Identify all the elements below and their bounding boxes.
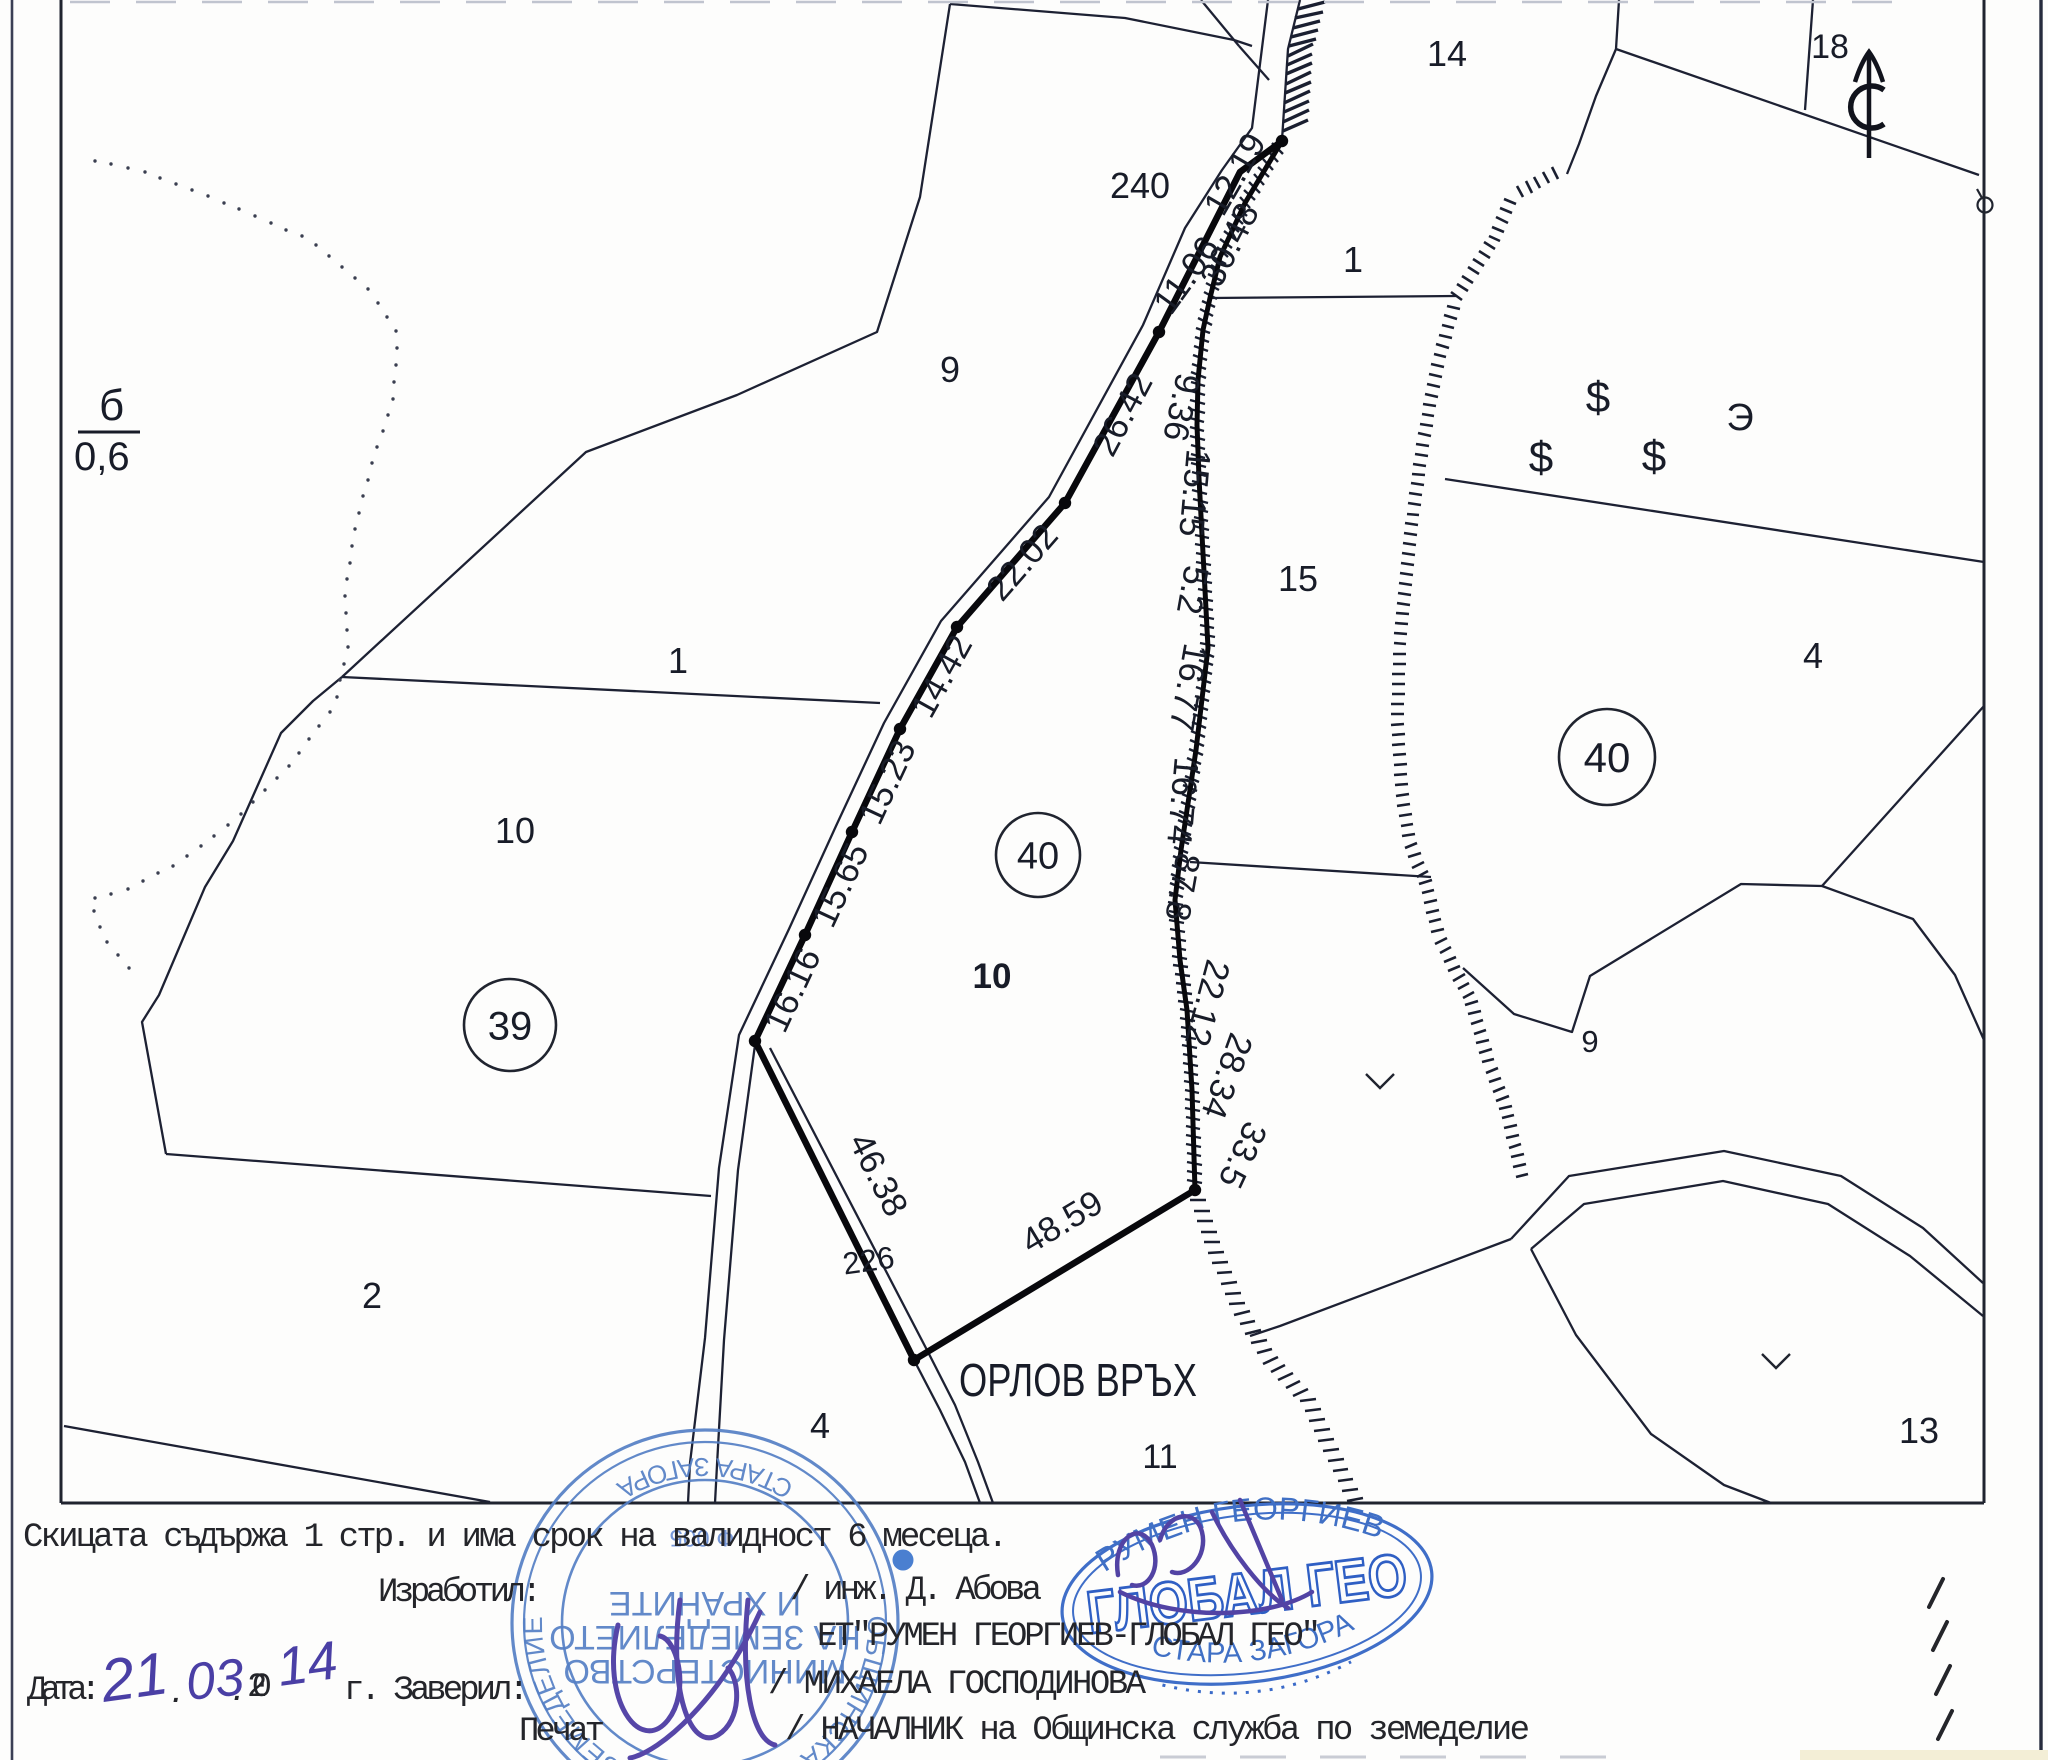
svg-text:И ХРАНИТЕ: И ХРАНИТЕ (609, 1584, 801, 1622)
svg-text:5.2: 5.2 (1169, 563, 1216, 618)
svg-text:16.74: 16.74 (1159, 756, 1205, 847)
svg-text:11: 11 (1142, 1438, 1177, 1476)
svg-text:ОРЛОВ ВРЪХ: ОРЛОВ ВРЪХ (959, 1354, 1197, 1406)
svg-text:87.8: 87.8 (1157, 850, 1207, 924)
svg-text:$: $ (1586, 373, 1610, 422)
svg-text:Скицата съдържа 1 стр. и има с: Скицата съдържа 1 стр. и има срок на вал… (23, 1519, 1008, 1557)
svg-text:$: $ (1529, 433, 1553, 482)
svg-text:ЕТ"РУМЕН ГЕОРГИЕВ-ГЛОБАЛ ГЕО": ЕТ"РУМЕН ГЕОРГИЕВ-ГЛОБАЛ ГЕО" (817, 1618, 1321, 1656)
svg-text:14: 14 (1427, 33, 1467, 74)
svg-text:16.77: 16.77 (1162, 640, 1216, 733)
svg-text:$: $ (1642, 432, 1666, 481)
svg-text:33.5: 33.5 (1210, 1116, 1274, 1194)
svg-text:10: 10 (973, 957, 1012, 996)
svg-text:16.16: 16.16 (756, 942, 828, 1038)
svg-text:13: 13 (1899, 1410, 1939, 1451)
svg-text:.: . (172, 1669, 183, 1711)
svg-text:15.65: 15.65 (804, 837, 876, 933)
svg-text:9: 9 (940, 349, 960, 390)
svg-text:б: б (99, 381, 124, 430)
svg-text:40: 40 (1584, 734, 1631, 781)
svg-text:Изработил:: Изработил: (378, 1574, 542, 1612)
svg-text:/ МИХАЕЛА ГОСПОДИНОВА: / МИХАЕЛА ГОСПОДИНОВА (768, 1666, 1147, 1704)
svg-text:НА ЗЕМЕДЕЛИЕТО: НА ЗЕМЕДЕЛИЕТО (549, 1618, 861, 1656)
svg-text:/ НАЧАЛНИК на Общинска служба: / НАЧАЛНИК на Общинска служба по земедел… (785, 1712, 1530, 1750)
svg-text:Дата:: Дата: (27, 1672, 101, 1710)
svg-text:15.15: 15.15 (1171, 448, 1217, 539)
svg-text:20: 20 (247, 1669, 272, 1707)
svg-text:18: 18 (1811, 28, 1849, 66)
svg-text:/ инж. Д. Абова: / инж. Д. Абова (790, 1572, 1042, 1610)
svg-text:15.23: 15.23 (851, 734, 923, 830)
svg-text:СТАРА ЗАГОРА: СТАРА ЗАГОРА (612, 1452, 798, 1506)
svg-text:10: 10 (495, 810, 535, 851)
svg-text:15: 15 (1278, 558, 1318, 599)
svg-text:14: 14 (273, 1630, 341, 1698)
svg-text:226: 226 (840, 1240, 896, 1282)
svg-text:4: 4 (1803, 635, 1823, 676)
svg-text:4: 4 (810, 1405, 830, 1446)
svg-text:21: 21 (95, 1639, 171, 1715)
svg-text:1: 1 (1343, 239, 1363, 280)
svg-text:Печат: Печат (519, 1713, 605, 1751)
svg-text:9: 9 (1581, 1024, 1598, 1059)
svg-text:40: 40 (1017, 836, 1059, 878)
svg-text:.: . (233, 1667, 244, 1709)
svg-text:14.42: 14.42 (904, 629, 981, 725)
svg-text:Э: Э (1726, 397, 1753, 439)
svg-text:39: 39 (488, 1004, 533, 1048)
svg-text:1: 1 (668, 640, 688, 681)
svg-text:0,6: 0,6 (74, 435, 130, 479)
svg-text:26.42: 26.42 (1085, 367, 1161, 463)
svg-text:240: 240 (1110, 165, 1170, 206)
svg-text:2: 2 (362, 1275, 382, 1316)
svg-text:г. Заверил:: г. Заверил: (344, 1672, 529, 1710)
